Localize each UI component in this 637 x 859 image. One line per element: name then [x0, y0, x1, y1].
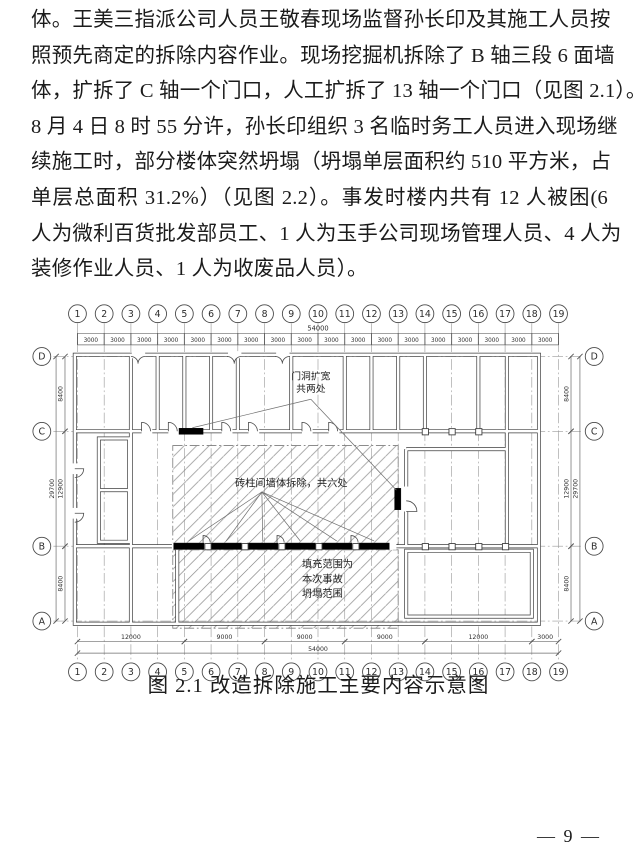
- paragraph-line: 体，扩拆了 C 轴一个门口，人工扩拆了 13 轴一个门口（见图 2.1）。: [31, 74, 608, 110]
- svg-label: 29700: [49, 479, 56, 499]
- axis-bubble-label: A: [39, 616, 46, 627]
- svg-label: 3000: [137, 338, 152, 344]
- svg-label: 12000: [121, 634, 141, 641]
- figure-2-1: 1122334455667788991010111112121313141415…: [24, 294, 612, 688]
- axis-bubble-label: 17: [499, 309, 511, 320]
- svg-label: 3000: [538, 338, 553, 344]
- svg-label: 3000: [484, 338, 499, 344]
- annotation-collapse-range: 填充范围为: [302, 558, 353, 571]
- axis-bubble-label: 2: [101, 309, 107, 320]
- axis-bubble-label: 10: [312, 309, 324, 320]
- paragraph-line: 续施工时，部分楼体突然坍塌（坍塌单层面积约 510 平方米，占: [31, 145, 608, 181]
- svg-label: 8400: [563, 576, 570, 592]
- svg-label: 8400: [57, 386, 64, 402]
- axis-bubble-label: 13: [392, 309, 404, 320]
- axis-bubble-label: B: [591, 541, 597, 552]
- svg-label: 12000: [468, 634, 488, 641]
- svg-label: 12900: [563, 479, 570, 499]
- axis-bubble-label: 12: [366, 309, 378, 320]
- svg-label: 29700: [573, 479, 580, 499]
- axis-bubble-label: A: [591, 616, 598, 627]
- axis-bubble-label: B: [39, 541, 45, 552]
- svg-label: 3000: [164, 338, 179, 344]
- svg-label: 3000: [324, 338, 339, 344]
- annotation-wall-demolish: 砖柱间墙体拆除，共六处: [235, 477, 348, 490]
- floor-plan-figure: 1122334455667788991010111112121313141415…: [24, 294, 612, 688]
- axis-bubble-label: 19: [553, 309, 565, 320]
- axis-bubble-label: 5: [181, 309, 187, 320]
- axis-bubble-label: 1: [74, 309, 80, 320]
- axis-bubble-label: 15: [446, 309, 458, 320]
- axis-bubble-label: 6: [208, 309, 214, 320]
- svg-label: 3000: [244, 338, 259, 344]
- svg-label: 3000: [537, 634, 553, 641]
- annotation-door-widen: 门洞扩宽: [291, 370, 330, 383]
- paragraph-line: 人为微利百货批发部员工、1 人为玉手公司现场管理人员、4 人为: [31, 217, 608, 253]
- svg-label: 12900: [57, 479, 64, 499]
- svg-label: 3000: [378, 338, 393, 344]
- page-number: — 9 —: [537, 826, 601, 847]
- paragraph-line: 体。王美三指派公司人员王敬春现场监督孙长印及其施工人员按: [31, 3, 608, 39]
- svg-label: 9000: [377, 634, 393, 641]
- body-paragraph: 体。王美三指派公司人员王敬春现场监督孙长印及其施工人员按照预先商定的拆除内容作业…: [31, 3, 608, 288]
- annotation-collapse-range: 坍塌范围: [302, 587, 343, 600]
- annotation-door-widen: 共两处: [296, 383, 326, 395]
- svg-label: 3000: [217, 338, 232, 344]
- axis-bubble-label: 3: [128, 309, 134, 320]
- axis-bubble-label: D: [591, 352, 598, 363]
- svg-label: 3000: [511, 338, 526, 344]
- axis-bubble-label: 18: [526, 309, 538, 320]
- svg-label: 54000: [307, 325, 328, 333]
- paragraph-line: 单层总面积 31.2%）（见图 2.2）。事发时楼内共有 12 人被困(6: [31, 181, 608, 217]
- svg-label: 3000: [404, 338, 419, 344]
- svg-label: 3000: [110, 338, 125, 344]
- axis-bubble-label: C: [591, 427, 598, 438]
- svg-label: 54000: [308, 646, 328, 653]
- svg-label: 8400: [57, 576, 64, 592]
- svg-label: 3000: [297, 338, 312, 344]
- axis-bubble-label: C: [39, 427, 46, 438]
- axis-bubble-label: 16: [472, 309, 484, 320]
- svg-label: 3000: [84, 338, 99, 344]
- svg-label: 9000: [217, 634, 233, 641]
- axis-bubble-label: 8: [262, 309, 268, 320]
- figure-caption: 图 2.1 改造拆除施工主要内容示意图: [0, 668, 637, 698]
- annotation-collapse-range: 本次事故: [302, 572, 343, 585]
- axis-bubble-label: 11: [339, 309, 351, 320]
- paragraph-line: 8 月 4 日 8 时 55 分许，孙长印组织 3 名临时务工人员进入现场继: [31, 110, 608, 146]
- paragraph-line: 照预先商定的拆除内容作业。现场挖掘机拆除了 B 轴三段 6 面墙: [31, 39, 608, 75]
- axis-bubble-label: 4: [155, 309, 161, 320]
- svg-label: 3000: [271, 338, 286, 344]
- svg-label: 3000: [431, 338, 446, 344]
- axis-bubble-label: 14: [419, 309, 431, 320]
- paragraph-line: 装修作业人员、1 人为收废品人员）。: [31, 252, 608, 288]
- svg-label: 8400: [563, 386, 570, 402]
- axis-bubble-label: 9: [288, 309, 294, 320]
- svg-label: 3000: [351, 338, 366, 344]
- svg-label: 3000: [190, 338, 205, 344]
- axis-bubble-label: 7: [235, 309, 241, 320]
- svg-label: 9000: [297, 634, 313, 641]
- axis-bubble-label: D: [38, 352, 45, 363]
- svg-label: 3000: [458, 338, 473, 344]
